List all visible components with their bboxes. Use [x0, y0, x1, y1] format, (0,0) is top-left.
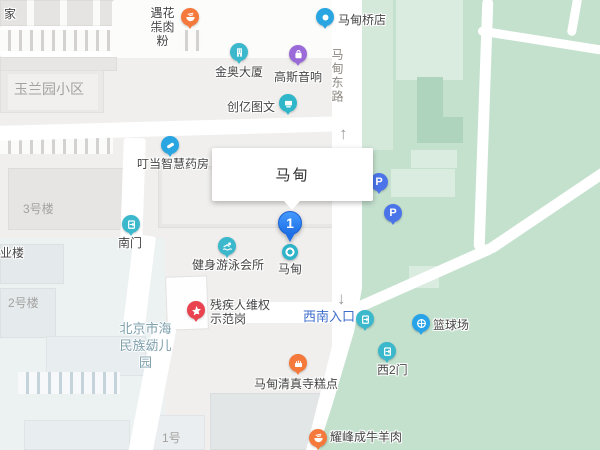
- park-path: [477, 26, 600, 55]
- print-shop-icon[interactable]: [279, 94, 297, 112]
- road-name-madian-east: 马甸东路: [330, 48, 344, 104]
- map-canvas[interactable]: ↑ ↓ 马甸东路 P P: [0, 0, 600, 450]
- kindergarten-label: 北京市海淀区 民族幼儿园: [60, 320, 174, 337]
- pharmacy-pill-icon[interactable]: [161, 136, 179, 154]
- madian-bridge-shop-label[interactable]: 马甸桥店: [338, 13, 386, 27]
- oneway-arrow-down: ↓: [337, 292, 346, 306]
- clipped-label-yelou: 业楼: [0, 246, 24, 260]
- park-building-light: [411, 150, 457, 168]
- rights-post-label[interactable]: 残疾人维权 示范岗: [210, 298, 276, 312]
- building-3-label: 3号楼: [23, 202, 54, 216]
- basketball-icon[interactable]: [412, 314, 430, 332]
- star-badge-icon[interactable]: [187, 301, 205, 319]
- oneway-arrow-up: ↑: [339, 127, 348, 141]
- building-3-block: [8, 168, 124, 230]
- building-block: [0, 0, 115, 26]
- gate-icon[interactable]: [122, 215, 140, 233]
- cake-icon[interactable]: [289, 354, 307, 372]
- beef-noodle-label[interactable]: 遇花溪苗家 牛肉粉: [116, 6, 178, 20]
- hotel-dot-icon[interactable]: [316, 8, 334, 26]
- west-gate-2-label[interactable]: 西2门: [377, 363, 408, 377]
- madian-station-label[interactable]: 马甸: [278, 262, 302, 276]
- mosque-bakery-label[interactable]: 马甸清真寺糕点: [254, 377, 338, 391]
- building-row: [0, 30, 112, 51]
- basketball-court-label[interactable]: 篮球场: [433, 318, 469, 332]
- yulanyuan-label: 玉兰园小区: [14, 82, 84, 96]
- park-path: [474, 0, 494, 250]
- building-row: [177, 30, 203, 51]
- building-band: [0, 57, 117, 71]
- infobox-title: 马甸: [275, 164, 309, 185]
- building-row: [18, 372, 120, 394]
- building-1-label: 1号: [162, 431, 181, 445]
- park-path: [567, 0, 583, 36]
- park-building-light: [396, 0, 463, 80]
- building: [210, 393, 320, 450]
- gate-icon[interactable]: [378, 342, 396, 360]
- shopping-bag-icon[interactable]: [289, 45, 307, 63]
- southwest-entrance-label[interactable]: 西南入口: [303, 310, 355, 324]
- clipped-label-jia: 家: [4, 7, 16, 21]
- building-2-label: 2号楼: [8, 296, 39, 310]
- place-infobox[interactable]: 马甸: [212, 148, 373, 201]
- park-path: [485, 165, 600, 255]
- gate-icon[interactable]: [356, 310, 374, 328]
- office-building-icon[interactable]: [230, 43, 248, 61]
- gauss-audio-label[interactable]: 高斯音响: [274, 70, 322, 84]
- swimmer-icon[interactable]: [218, 237, 236, 255]
- yaofengcheng-meat-label[interactable]: 耀峰成牛羊肉: [330, 430, 402, 444]
- restaurant-icon[interactable]: [309, 429, 327, 447]
- park-building-light: [391, 169, 455, 197]
- parking-icon[interactable]: P: [384, 204, 402, 222]
- chuangyi-print-label[interactable]: 创亿图文: [227, 100, 275, 114]
- building: [24, 420, 130, 450]
- restaurant-icon[interactable]: [181, 8, 199, 26]
- park-building-dark: [417, 117, 463, 143]
